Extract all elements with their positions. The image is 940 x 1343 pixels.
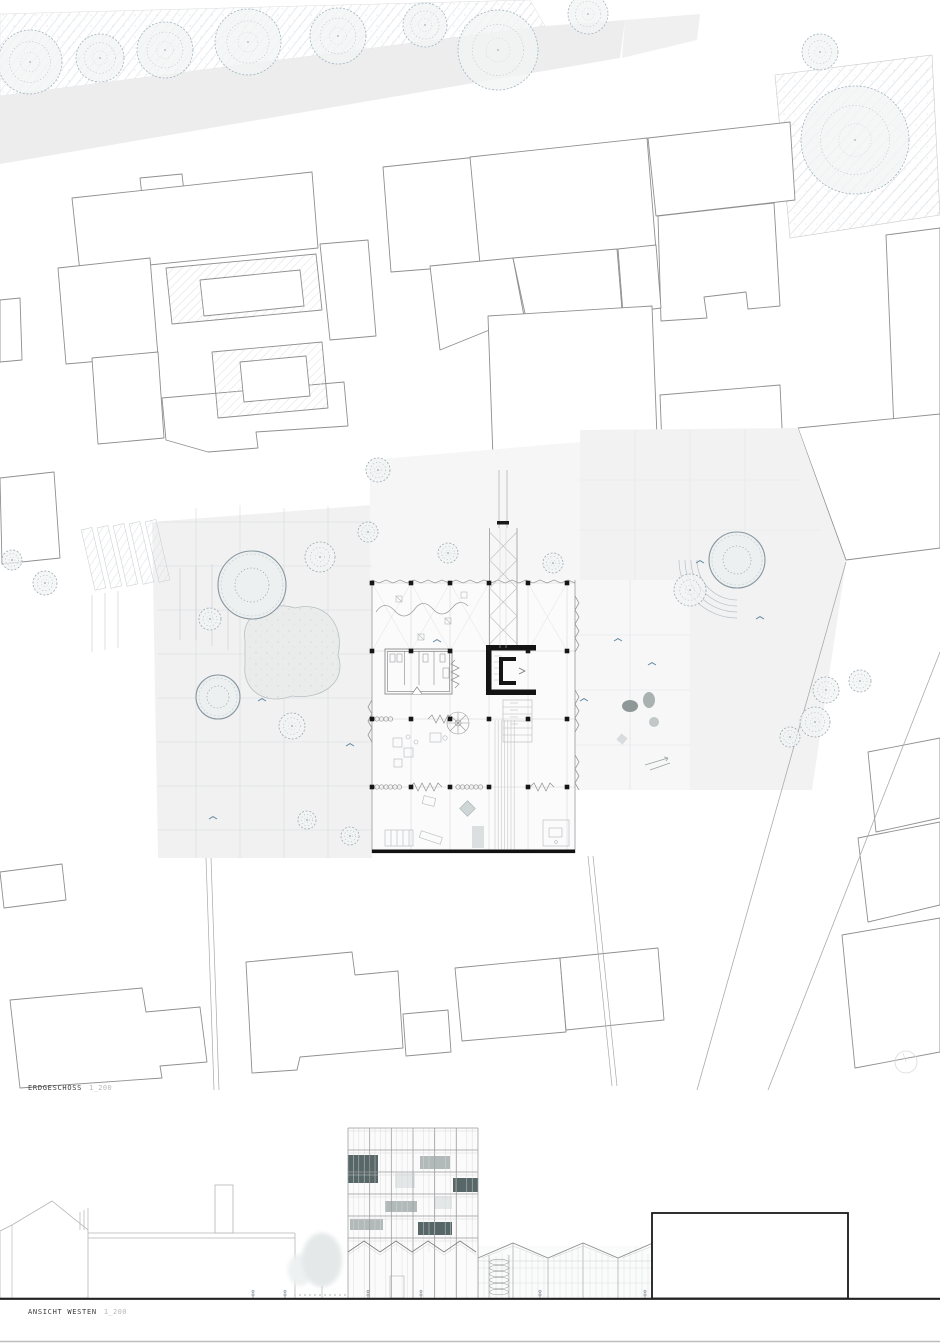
elevation-tower	[348, 1128, 478, 1298]
column	[487, 717, 492, 722]
site-plan-drawing	[0, 0, 940, 1100]
tree-tree	[298, 811, 316, 829]
tree-silhouette	[288, 1233, 346, 1298]
tree-tree	[279, 713, 305, 739]
street-tree	[458, 10, 538, 90]
column	[409, 785, 414, 790]
column	[565, 785, 570, 790]
plan-title-block: ERDGESCHOSS1_200	[28, 1084, 112, 1092]
glass-hall	[478, 1243, 660, 1298]
street-tree	[310, 8, 366, 64]
planter-tree	[218, 551, 286, 619]
column	[370, 717, 375, 722]
drawing-sheet: ERDGESCHOSS1_200 ANSICHT WESTEN1_200	[0, 0, 940, 1343]
elevation-title-block: ANSICHT WESTEN1_200	[28, 1308, 127, 1316]
street-tree	[801, 86, 909, 194]
person-figure	[283, 1290, 287, 1298]
tree-tree	[2, 550, 22, 570]
facade-panel-pale	[434, 1196, 452, 1209]
context-buildings-left	[0, 1185, 295, 1298]
column	[565, 581, 570, 586]
south-facade-cut-wall	[372, 850, 575, 854]
column	[448, 649, 453, 654]
planter-tree	[709, 532, 765, 588]
column	[526, 581, 531, 586]
street-tree	[76, 34, 124, 82]
facade-panel-pale	[395, 1173, 415, 1188]
column	[565, 717, 570, 722]
west-elevation-drawing	[0, 1100, 940, 1343]
tree-tree	[780, 727, 800, 747]
spiral-stair-plan	[447, 712, 469, 734]
tree-tree	[305, 542, 335, 572]
planting-blob	[244, 606, 340, 699]
tree-tree	[543, 553, 563, 573]
tree-tree	[341, 827, 359, 845]
column	[370, 649, 375, 654]
column	[487, 649, 492, 654]
facade-panel-dark	[453, 1178, 478, 1192]
column	[448, 581, 453, 586]
planter-tree	[196, 675, 240, 719]
elevation-scale: 1_200	[104, 1308, 127, 1316]
column	[487, 581, 492, 586]
tree-tree	[33, 571, 57, 595]
tree-tree	[366, 458, 390, 482]
column	[448, 717, 453, 722]
column	[370, 785, 375, 790]
tree-tree	[800, 707, 830, 737]
tree-tree	[674, 574, 706, 606]
street-tree	[403, 3, 447, 47]
tree-tree	[199, 608, 221, 630]
column	[370, 581, 375, 586]
facade-panel-light	[385, 1201, 417, 1212]
column	[526, 717, 531, 722]
column	[409, 649, 414, 654]
column	[526, 649, 531, 654]
street-tree	[215, 9, 281, 75]
column	[526, 785, 531, 790]
column	[409, 717, 414, 722]
tree-tree	[358, 522, 378, 542]
plan-title: ERDGESCHOSS	[28, 1084, 82, 1092]
column	[409, 581, 414, 586]
facade-panel-dark	[348, 1155, 378, 1183]
tree-tree	[813, 677, 839, 703]
plan-scale: 1_200	[89, 1084, 112, 1092]
street-tree	[0, 30, 62, 94]
street-tree	[802, 34, 838, 70]
tree-tree	[849, 670, 871, 692]
street-tree	[137, 22, 193, 78]
column	[487, 785, 492, 790]
context-building-right	[652, 1213, 848, 1299]
elevation-title: ANSICHT WESTEN	[28, 1308, 97, 1316]
facade-panel-light	[350, 1219, 383, 1230]
column	[565, 649, 570, 654]
person-figure	[251, 1290, 255, 1298]
tree-tree	[438, 543, 458, 563]
column	[448, 785, 453, 790]
